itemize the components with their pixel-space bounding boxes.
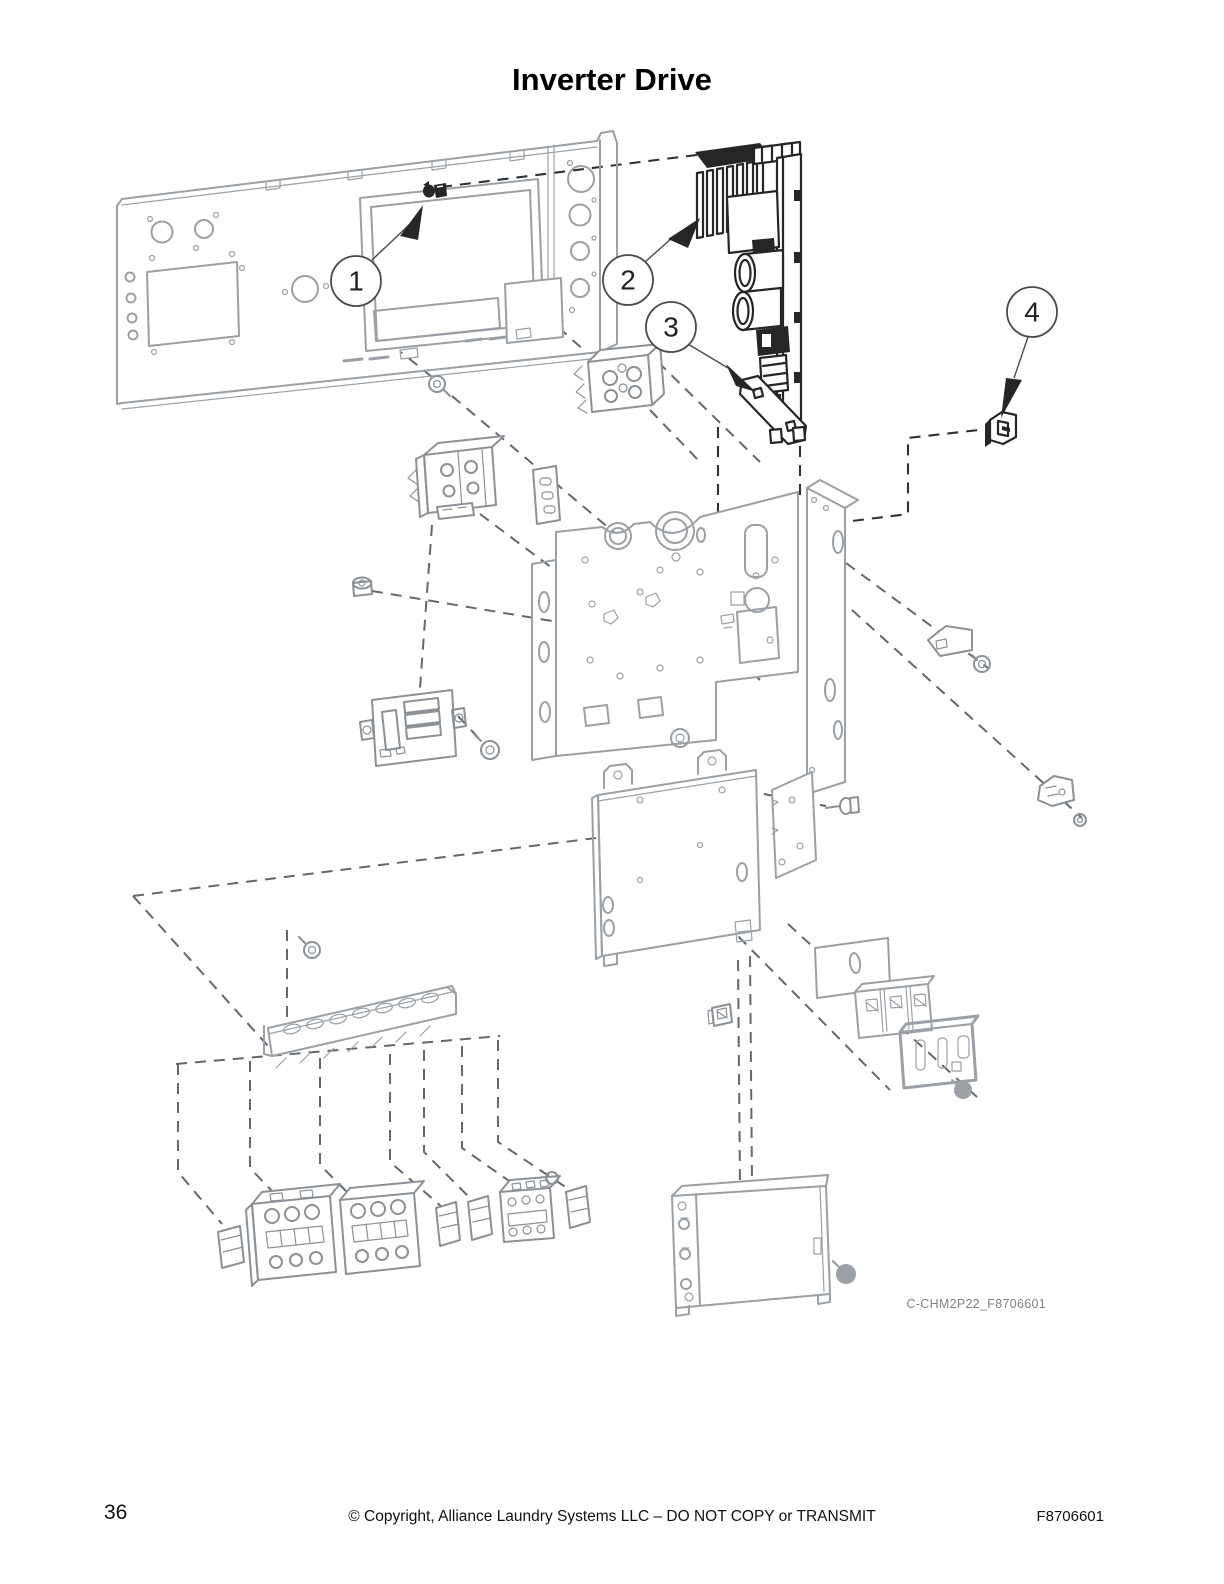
diagram-code: C-CHM2P22_F8706601 — [746, 1297, 1046, 1311]
screw-a — [429, 376, 450, 396]
callout-4: 4 — [1001, 287, 1057, 418]
terminal-block-b — [574, 344, 664, 413]
small-bracket-screw — [1038, 776, 1086, 826]
contactor-row — [218, 1172, 590, 1286]
cable-clip-bracket — [928, 626, 990, 672]
din-rail — [264, 937, 456, 1068]
cover-plate — [592, 750, 760, 966]
small-square-clip — [708, 1004, 732, 1026]
callout-4-number: 4 — [1024, 297, 1040, 328]
side-flange-bracket — [807, 480, 858, 794]
footer-doc-number: F8706601 — [1036, 1508, 1104, 1525]
junction-box — [672, 1175, 856, 1316]
exploded-parts-diagram: 1 2 3 4 — [0, 0, 1224, 1584]
screw-horizontal — [826, 797, 859, 814]
mounting-clip-a — [437, 503, 474, 519]
callout-2-number: 2 — [620, 265, 636, 296]
clip-4 — [985, 412, 1016, 447]
small-side-plate — [772, 772, 816, 878]
callout-3-number: 3 — [663, 312, 679, 343]
callout-1-number: 1 — [348, 266, 364, 297]
din-clip-strip — [533, 466, 560, 524]
relay-module — [360, 690, 499, 766]
manual-page: Inverter Drive — [0, 0, 1224, 1584]
inverter-drive-assembly — [695, 142, 806, 444]
callout-1: 1 — [331, 205, 423, 306]
mounting-plate — [532, 492, 798, 760]
screw-1 — [423, 181, 447, 198]
terminal-cover-group — [815, 938, 978, 1099]
nut — [353, 578, 372, 597]
